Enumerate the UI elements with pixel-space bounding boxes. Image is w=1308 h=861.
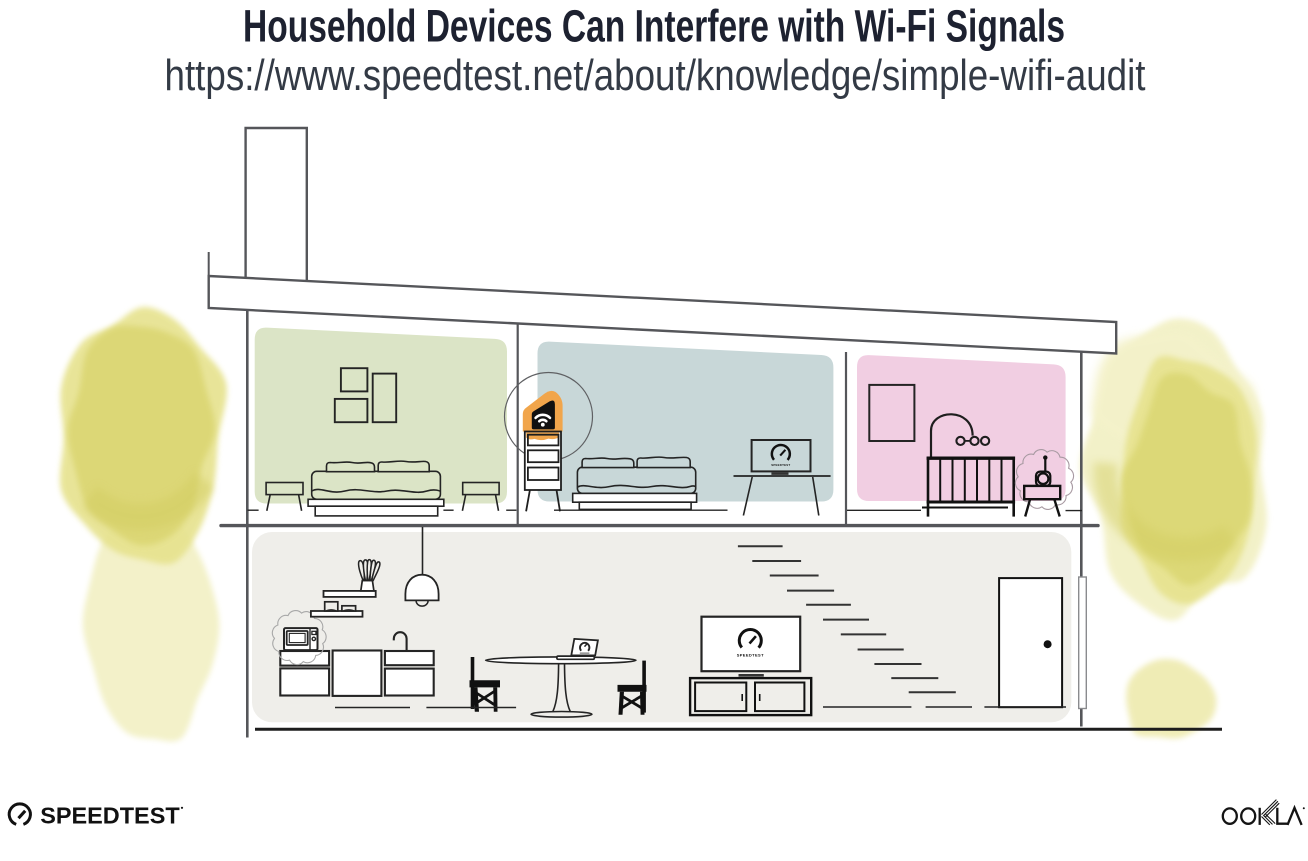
svg-text:SPEEDTEST: SPEEDTEST	[771, 463, 790, 467]
svg-text:https://www.speedtest.net/abou: https://www.speedtest.net/about/knowledg…	[165, 51, 1146, 100]
svg-text:Household Devices Can Interfer: Household Devices Can Interfere with Wi-…	[243, 1, 1065, 52]
svg-text:SPEEDTEST: SPEEDTEST	[40, 803, 180, 829]
svg-text:SPEEDTEST: SPEEDTEST	[737, 653, 764, 658]
